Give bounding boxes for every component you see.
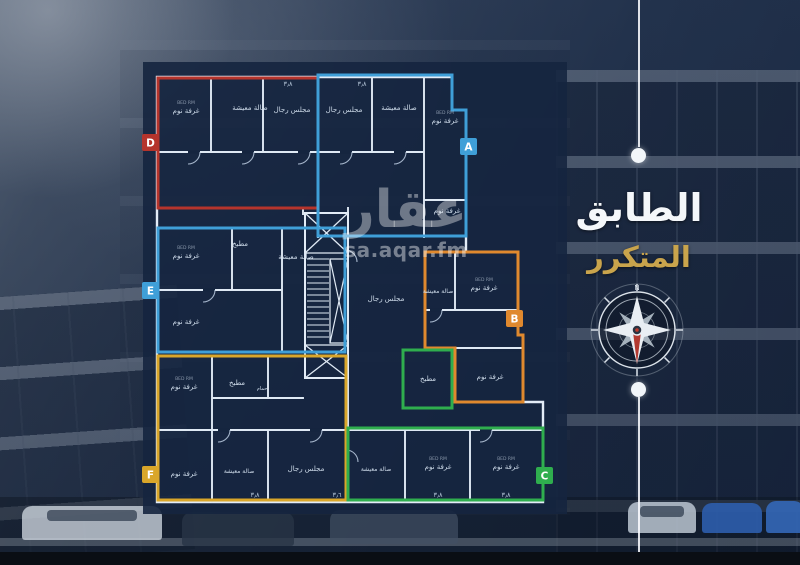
unit-badge-f: F [142,466,159,483]
dimension-label: ٣٫٨ [283,80,293,88]
room-label-en: BED RM [429,456,447,462]
dimension-label: ٣٫٨ [250,491,260,499]
room-label: غرفة نوم [173,107,200,115]
room-label: غرفة نوم [471,284,498,292]
timeline-line-bottom [638,397,640,552]
unit-badge-d: D [142,134,159,151]
room-label: صالة معيشة [278,253,313,261]
room-label: صالة معيشة [423,288,453,295]
dimension-label: ٣٫٨ [433,491,443,499]
compass-rose: N [589,282,685,378]
timeline-dot-top [631,148,646,163]
room-label-en: BED RM [177,245,195,251]
room-label: غرفة نوم [171,470,198,478]
unit-badge-label: C [541,471,549,483]
room-label: مطبخ [420,375,436,383]
room-label: غرفة نوم [425,463,452,471]
room-label: غرفة نوم [434,207,461,215]
room-label: صالة معيشة [361,466,391,473]
room-label: صالة معيشة [232,104,267,112]
room-label: مطبخ [229,379,245,387]
room-label-en: BED RM [475,277,493,283]
unit-badge-label: D [146,138,155,150]
timeline-line-top [638,0,640,147]
screenshot-root: D A E B F C BED [0,0,800,565]
dimension-label: ٣٫٦ [332,491,342,499]
room-label: غرفة نوم [171,383,198,391]
page-title-line1: الطابق [558,186,720,230]
page-title-line2: المتكرر [558,240,720,274]
plan-backdrop [143,62,567,514]
dimension-label: ٣٫٨ [501,491,511,499]
unit-badge-e: E [142,282,159,299]
bottom-black-band [0,552,800,565]
compass-north-label: N [634,284,639,292]
room-label: حمام [257,386,268,392]
dimension-label: ٣٫٨ [357,80,367,88]
unit-badge-a: A [460,138,477,155]
room-label: مجلس رجال [326,106,363,114]
room-label-en: BED RM [177,100,195,106]
unit-badge-label: A [464,142,473,154]
timeline-dot-bottom [631,382,646,397]
unit-badge-b: B [506,310,523,327]
room-label: غرفة نوم [173,252,200,260]
room-label-en: BED RM [497,456,515,462]
room-label: غرفة نوم [432,117,459,125]
room-label-en: BED RM [175,376,193,382]
room-label: مجلس رجال [368,295,405,303]
room-label: مجلس رجال [288,465,325,473]
room-label: غرفة نوم [493,463,520,471]
room-label: غرفة نوم [173,318,200,326]
room-label: غرفة نوم [477,373,504,381]
room-label-en: BED RM [436,110,454,116]
room-label: صالة معيشة [224,468,254,475]
room-label: مجلس رجال [274,106,311,114]
room-label: مطبخ [232,240,248,248]
unit-badge-label: B [510,314,518,326]
unit-badge-label: F [147,470,154,482]
unit-badge-label: E [147,286,154,298]
room-label: صالة معيشة [381,104,416,112]
unit-badge-c: C [536,467,553,484]
